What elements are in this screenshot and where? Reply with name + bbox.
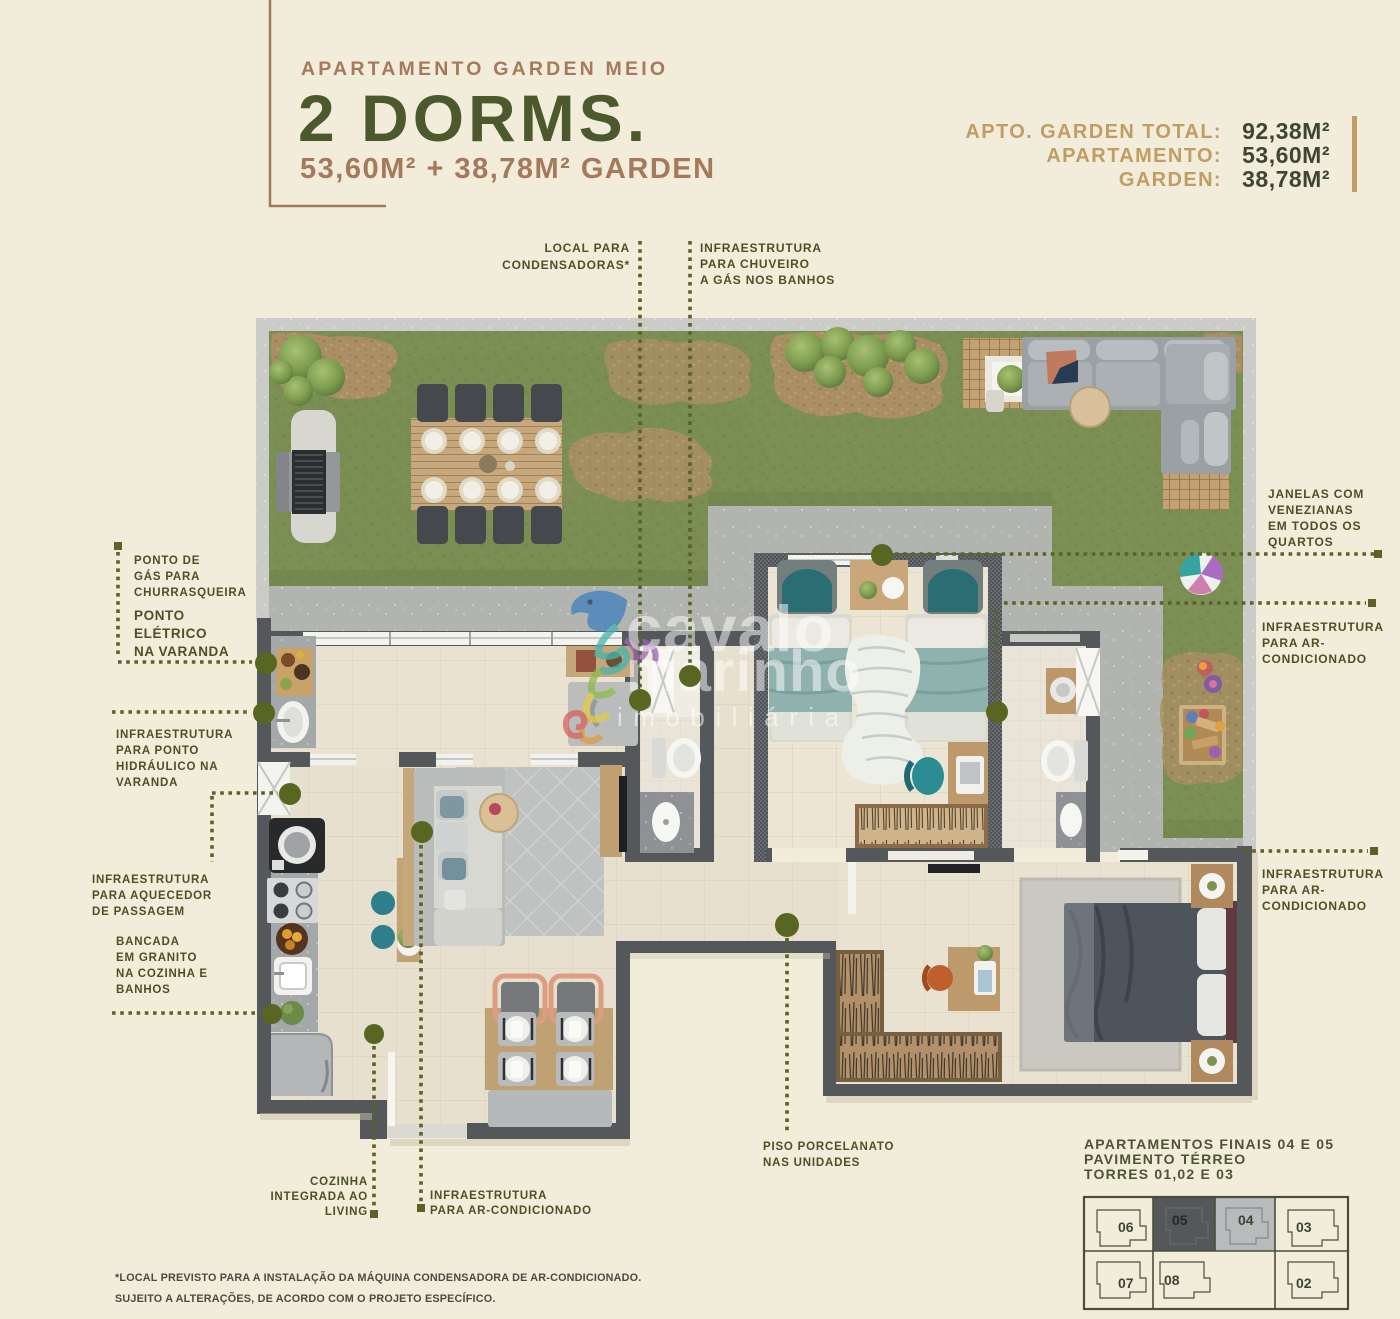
svg-text:38,78M²: 38,78M² <box>1242 166 1330 192</box>
svg-text:04: 04 <box>1238 1212 1254 1228</box>
svg-text:APTO. GARDEN TOTAL:: APTO. GARDEN TOTAL: <box>965 121 1222 143</box>
svg-text:02: 02 <box>1296 1275 1312 1291</box>
svg-text:GARDEN:: GARDEN: <box>1119 169 1222 191</box>
svg-text:VENEZIANAS: VENEZIANAS <box>1268 503 1353 517</box>
svg-text:APARTAMENTO:: APARTAMENTO: <box>1046 145 1222 167</box>
svg-text:GÁS PARA: GÁS PARA <box>134 570 200 583</box>
svg-text:EM TODOS OS: EM TODOS OS <box>1268 519 1361 533</box>
svg-text:03: 03 <box>1296 1219 1312 1235</box>
svg-text:CONDENSADORAS*: CONDENSADORAS* <box>502 258 630 272</box>
svg-text:VARANDA: VARANDA <box>116 777 178 789</box>
svg-text:PARA AR-: PARA AR- <box>1262 636 1325 650</box>
svg-text:NA COZINHA E: NA COZINHA E <box>116 968 208 980</box>
svg-text:APARTAMENTOS FINAIS 04 E 05: APARTAMENTOS FINAIS 04 E 05 <box>1084 1136 1334 1152</box>
svg-text:EM GRANITO: EM GRANITO <box>116 952 197 964</box>
svg-text:PARA CHUVEIRO: PARA CHUVEIRO <box>700 257 810 271</box>
svg-text:PISO PORCELANATO: PISO PORCELANATO <box>763 1141 894 1153</box>
svg-text:marinho: marinho <box>626 639 862 704</box>
svg-text:A GÁS NOS BANHOS: A GÁS NOS BANHOS <box>700 272 835 287</box>
svg-text:imobiliária: imobiliária <box>617 702 850 732</box>
svg-text:INTEGRADA AO: INTEGRADA AO <box>270 1191 368 1203</box>
svg-text:ELÉTRICO: ELÉTRICO <box>134 626 207 641</box>
svg-text:NAS UNIDADES: NAS UNIDADES <box>763 1157 860 1169</box>
svg-text:LOCAL PARA: LOCAL PARA <box>544 241 630 255</box>
svg-text:PARA AQUECEDOR: PARA AQUECEDOR <box>92 890 212 902</box>
svg-text:INFRAESTRUTURA: INFRAESTRUTURA <box>116 729 233 741</box>
svg-text:*LOCAL PREVISTO PARA A INSTALA: *LOCAL PREVISTO PARA A INSTALAÇÃO DA MÁQ… <box>115 1271 641 1284</box>
svg-text:53,60M² + 38,78M² GARDEN: 53,60M² + 38,78M² GARDEN <box>300 153 716 185</box>
svg-text:CHURRASQUEIRA: CHURRASQUEIRA <box>134 587 247 599</box>
svg-text:PONTO DE: PONTO DE <box>134 555 200 567</box>
svg-text:CONDICIONADO: CONDICIONADO <box>1262 652 1367 666</box>
svg-text:APARTAMENTO GARDEN MEIO: APARTAMENTO GARDEN MEIO <box>301 58 668 80</box>
svg-text:PARA PONTO: PARA PONTO <box>116 745 199 757</box>
svg-text:PARA AR-CONDICIONADO: PARA AR-CONDICIONADO <box>430 1205 592 1217</box>
svg-text:07: 07 <box>1118 1275 1134 1291</box>
svg-text:QUARTOS: QUARTOS <box>1268 535 1333 549</box>
svg-text:BANHOS: BANHOS <box>116 984 171 996</box>
svg-text:TORRES 01,02 E 03: TORRES 01,02 E 03 <box>1084 1166 1234 1182</box>
svg-text:BANCADA: BANCADA <box>116 936 180 948</box>
svg-text:53,60M²: 53,60M² <box>1242 142 1330 168</box>
svg-text:PONTO: PONTO <box>134 608 185 623</box>
svg-text:NA VARANDA: NA VARANDA <box>134 644 229 659</box>
svg-text:INFRAESTRUTURA: INFRAESTRUTURA <box>700 241 822 255</box>
svg-text:05: 05 <box>1172 1212 1188 1228</box>
svg-text:COZINHA: COZINHA <box>310 1176 368 1188</box>
svg-text:INFRAESTRUTURA: INFRAESTRUTURA <box>1262 867 1384 881</box>
svg-text:INFRAESTRUTURA: INFRAESTRUTURA <box>1262 620 1384 634</box>
svg-text:HIDRÁULICO NA: HIDRÁULICO NA <box>116 760 218 773</box>
svg-text:INFRAESTRUTURA: INFRAESTRUTURA <box>92 874 209 886</box>
svg-text:SUJEITO A ALTERAÇÕES, DE ACORD: SUJEITO A ALTERAÇÕES, DE ACORDO COM O PR… <box>115 1292 496 1305</box>
svg-text:92,38M²: 92,38M² <box>1242 118 1330 144</box>
svg-text:08: 08 <box>1164 1272 1180 1288</box>
svg-text:PAVIMENTO TÉRREO: PAVIMENTO TÉRREO <box>1084 1151 1246 1167</box>
svg-text:LIVING: LIVING <box>325 1206 368 1218</box>
svg-text:2 DORMS.: 2 DORMS. <box>298 81 649 155</box>
svg-text:DE PASSAGEM: DE PASSAGEM <box>92 906 185 918</box>
svg-text:JANELAS COM: JANELAS COM <box>1268 487 1364 501</box>
svg-text:06: 06 <box>1118 1219 1134 1235</box>
svg-text:INFRAESTRUTURA: INFRAESTRUTURA <box>430 1190 547 1202</box>
svg-text:CONDICIONADO: CONDICIONADO <box>1262 899 1367 913</box>
svg-text:PARA AR-: PARA AR- <box>1262 883 1325 897</box>
